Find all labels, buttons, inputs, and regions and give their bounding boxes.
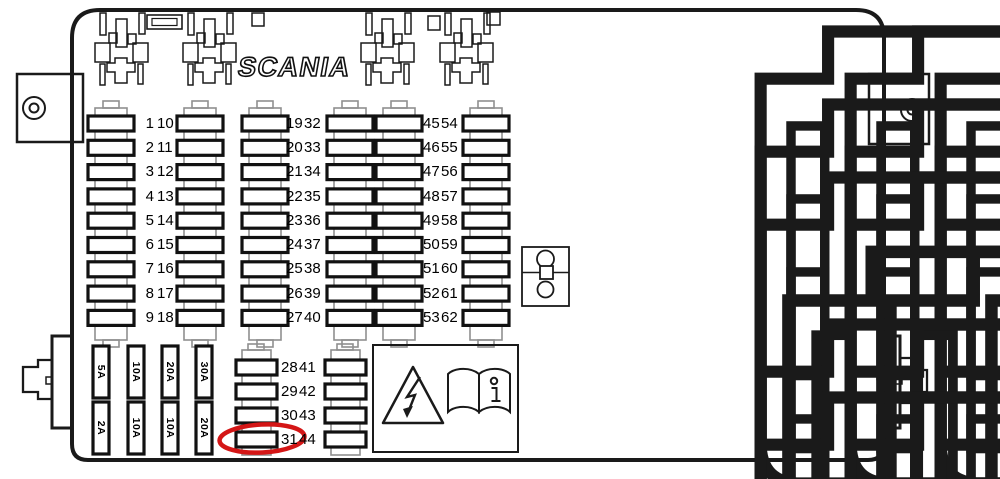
- fuse-number: 22: [286, 189, 301, 204]
- fuse-number-pair: 2740: [286, 305, 324, 329]
- fuse-number: 58: [441, 213, 461, 228]
- fuse-number: 16: [157, 261, 177, 276]
- fuse-number: 44: [299, 432, 319, 447]
- fuse-number: 30: [281, 408, 296, 423]
- spare-fuse-label: 30A: [197, 346, 211, 398]
- fuse-number: 39: [304, 286, 324, 301]
- mounting-lug-left: [23, 336, 72, 428]
- fuse-number-pair: 4554: [423, 111, 461, 135]
- fuse-number: 48: [423, 189, 438, 204]
- fuse-number: 38: [304, 261, 324, 276]
- fuse-strip-1-9: [88, 101, 134, 347]
- fuse-strip-45-53: [376, 101, 422, 347]
- high-voltage-warning-icon: [383, 367, 443, 423]
- fuse-number-column-d: 2841 2942 3043 3144: [281, 355, 319, 451]
- fuse-number-pair: 2437: [286, 232, 324, 256]
- fuse-number-column-b: 1932 2033 2134 2235 2336 2437 2538 2639 …: [286, 111, 324, 330]
- fuse-number-pair: 2336: [286, 208, 324, 232]
- fuse-number-pair: 4655: [423, 135, 461, 159]
- fuse-number-pair: 2235: [286, 184, 324, 208]
- fuse-number: 43: [299, 408, 319, 423]
- fuse-number: 14: [157, 213, 177, 228]
- fuse-number: 18: [157, 310, 177, 325]
- fuse-number: 29: [281, 384, 296, 399]
- fuse-number-pair: 413: [139, 184, 177, 208]
- fuse-number: 57: [441, 189, 461, 204]
- connector-box: [522, 247, 569, 306]
- fuse-strip-41-44: [325, 344, 366, 455]
- fuse-number: 33: [304, 140, 324, 155]
- fuse-number: 42: [299, 384, 319, 399]
- spare-fuse-label: 10A: [163, 402, 177, 454]
- fuse-number-pair: 5160: [423, 257, 461, 281]
- scania-fuse-box-diagram: SCANIA: [0, 0, 1000, 479]
- fuse-number: 27: [286, 310, 301, 325]
- fuse-number: 3: [139, 164, 154, 179]
- fuse-number: 52: [423, 286, 438, 301]
- fuse-number: 50: [423, 237, 438, 252]
- fuse-number-column-c: 4554 4655 4756 4857 4958 5059 5160 5261 …: [423, 111, 461, 330]
- spare-fuse-label: 20A: [197, 402, 211, 454]
- fuse-number: 5: [139, 213, 154, 228]
- fuse-number-pair: 4958: [423, 208, 461, 232]
- fuse-number: 55: [441, 140, 461, 155]
- fuse-number: 19: [286, 116, 301, 131]
- relay-grid: [761, 31, 1000, 479]
- fuse-number-pair: 817: [139, 281, 177, 305]
- fuse-number: 12: [157, 164, 177, 179]
- fuse-number: 41: [299, 360, 319, 375]
- fuse-number: 10: [157, 116, 177, 131]
- fuse-number-pair: 5059: [423, 232, 461, 256]
- fuse-number: 1: [139, 116, 154, 131]
- fuse-number: 6: [139, 237, 154, 252]
- fuse-number: 46: [423, 140, 438, 155]
- spare-fuse-holders: [93, 346, 212, 454]
- fuse-number: 25: [286, 261, 301, 276]
- fuse-number: 31: [281, 432, 296, 447]
- fuse-number-pair: 312: [139, 160, 177, 184]
- fuse-number-column-a: 110 211 312 413 514 615 716 817 918: [139, 111, 177, 330]
- fuse-number: 9: [139, 310, 154, 325]
- scania-logo: SCANIA: [236, 51, 354, 82]
- fuse-number: 35: [304, 189, 324, 204]
- fuse-number: 11: [157, 140, 177, 155]
- spare-fuse-label: 10A: [129, 346, 143, 398]
- fuse-number: 47: [423, 164, 438, 179]
- fuse-number: 4: [139, 189, 154, 204]
- fuse-number-pair: 918: [139, 305, 177, 329]
- fuse-number: 24: [286, 237, 301, 252]
- fuse-number-pair: 2942: [281, 379, 319, 403]
- fuse-strip-10-18: [177, 101, 223, 347]
- fuse-number-pair: 5261: [423, 281, 461, 305]
- fuse-number: 8: [139, 286, 154, 301]
- fuse-number-pair: 110: [139, 111, 177, 135]
- spare-fuse-label: 10A: [129, 402, 143, 454]
- fuse-number: 45: [423, 116, 438, 131]
- spare-fuse-label: 5A: [94, 346, 108, 398]
- fuse-number-pair: 2841: [281, 355, 319, 379]
- spare-fuse-label: 2A: [94, 402, 108, 454]
- fuse-number: 51: [423, 261, 438, 276]
- fuse-number-pair: 716: [139, 257, 177, 281]
- fuse-number: 15: [157, 237, 177, 252]
- fuse-number-pair: 615: [139, 232, 177, 256]
- fuse-number: 20: [286, 140, 301, 155]
- fuse-number: 26: [286, 286, 301, 301]
- spare-fuse-label: 20A: [163, 346, 177, 398]
- fuse-number-pair: 3043: [281, 403, 319, 427]
- warning-panel: [373, 345, 518, 452]
- fuse-number: 32: [304, 116, 324, 131]
- fuse-number: 54: [441, 116, 461, 131]
- fuse-number: 17: [157, 286, 177, 301]
- fuse-number: 28: [281, 360, 296, 375]
- fuse-number: 2: [139, 140, 154, 155]
- fuse-number: 36: [304, 213, 324, 228]
- fuse-strip-32-40: [327, 101, 373, 347]
- fuse-number: 49: [423, 213, 438, 228]
- fuse-number: 21: [286, 164, 301, 179]
- fuse-number-pair: 1932: [286, 111, 324, 135]
- fuse-number: 13: [157, 189, 177, 204]
- fuse-number-pair: 2033: [286, 135, 324, 159]
- fuse-strip-28-31: [236, 344, 277, 455]
- fuse-strip-19-27: [242, 101, 288, 347]
- fuse-number-pair: 4857: [423, 184, 461, 208]
- fuse-number: 62: [441, 310, 461, 325]
- fuse-number: 53: [423, 310, 438, 325]
- fuse-number-pair: 2134: [286, 160, 324, 184]
- fuse-number: 60: [441, 261, 461, 276]
- manual-info-book-icon: [448, 369, 510, 412]
- fuse-number-pair: 4756: [423, 160, 461, 184]
- fuse-number-pair: 514: [139, 208, 177, 232]
- fuse-number: 23: [286, 213, 301, 228]
- fuse-number-pair: 2538: [286, 257, 324, 281]
- fuse-number: 59: [441, 237, 461, 252]
- fuse-number: 7: [139, 261, 154, 276]
- fuse-number-pair: 5362: [423, 305, 461, 329]
- fuse-number-pair: 3144: [281, 427, 319, 451]
- fuse-number-pair: 211: [139, 135, 177, 159]
- fuse-number: 61: [441, 286, 461, 301]
- fuse-number: 34: [304, 164, 324, 179]
- fuse-strip-54-62: [463, 101, 509, 347]
- fuse-number: 40: [304, 310, 324, 325]
- fuse-number-pair: 2639: [286, 281, 324, 305]
- fuse-number: 37: [304, 237, 324, 252]
- fuse-number: 56: [441, 164, 461, 179]
